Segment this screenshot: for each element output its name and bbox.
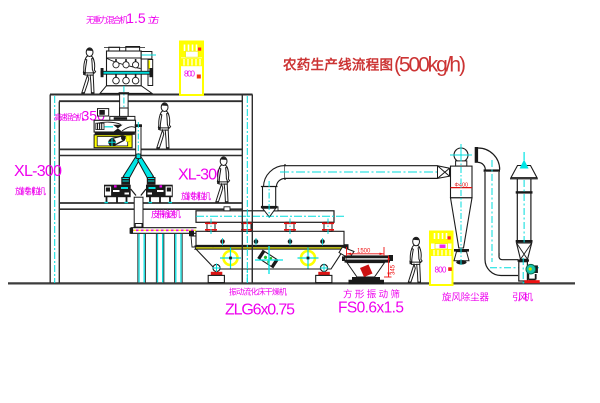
svg-text:振动流化床干燥机: 振动流化床干燥机 [229, 287, 287, 297]
svg-text:旋转制粒机: 旋转制粒机 [181, 191, 211, 202]
svg-text:旋转制粒机: 旋转制粒机 [15, 186, 46, 197]
svg-text:ZLG6x0.75: ZLG6x0.75 [225, 302, 295, 319]
svg-text:345: 345 [391, 264, 397, 275]
svg-text:XL-300: XL-300 [14, 163, 62, 180]
svg-text:旋风除尘器: 旋风除尘器 [442, 292, 489, 304]
svg-text:FS0.6x1.5: FS0.6x1.5 [338, 300, 404, 317]
svg-text:800: 800 [184, 70, 196, 79]
svg-text:(500kg/h): (500kg/h) [394, 54, 466, 77]
svg-text:农药生产线流程图: 农药生产线流程图 [282, 57, 393, 73]
svg-text:1500: 1500 [357, 248, 371, 254]
svg-text:800: 800 [435, 266, 448, 275]
svg-text:皮带输送机: 皮带输送机 [151, 209, 181, 220]
svg-text:引风机: 引风机 [512, 292, 533, 304]
